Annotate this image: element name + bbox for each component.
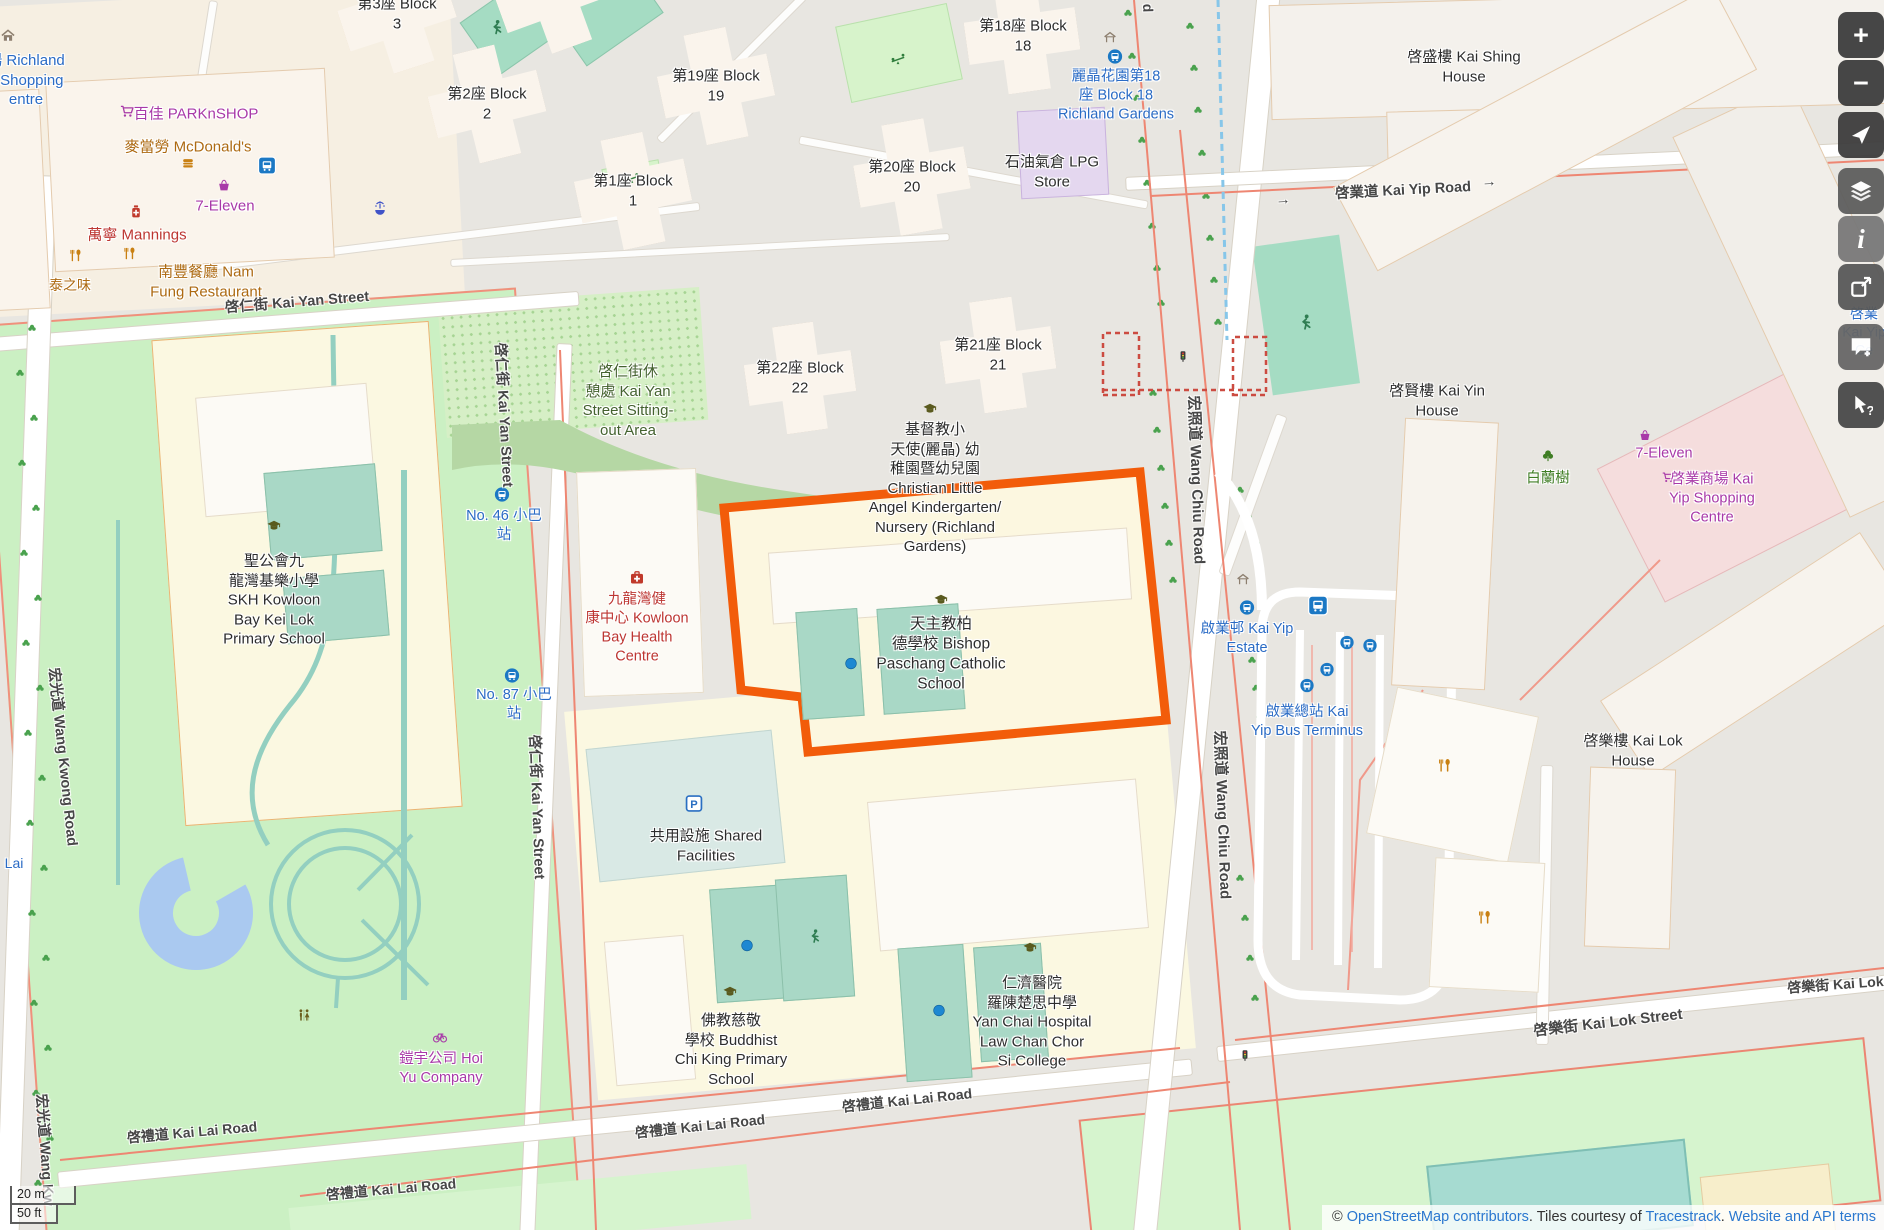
tree-icon xyxy=(29,996,40,1014)
attribution-mid2: . xyxy=(1721,1209,1729,1225)
dot-icon xyxy=(741,939,754,957)
attribution-osm-link[interactable]: OpenStreetMap contributors xyxy=(1347,1209,1529,1225)
attribution-bar: © OpenStreetMap contributors. Tiles cour… xyxy=(1322,1205,1884,1230)
school-icon xyxy=(933,593,949,614)
tl-icon xyxy=(1177,350,1190,368)
scale-bar-metric: 20 m xyxy=(10,1186,76,1205)
map-label-lai-partial: Lai xyxy=(5,854,24,872)
tree-icon xyxy=(1168,573,1179,591)
busstation-icon xyxy=(258,157,276,180)
home-icon xyxy=(1,28,16,48)
tree-icon xyxy=(1160,499,1171,517)
road-estate-5 xyxy=(450,233,950,267)
map-label-block-3: 第3座 Block 3 xyxy=(357,0,436,34)
scale-bar-imperial: 50 ft xyxy=(10,1205,58,1224)
map-label-wang-chiu-road-v2: 宏照道 Wang Chiu Road xyxy=(1209,730,1234,899)
tree-icon xyxy=(1152,423,1163,441)
map-label-block-22: 第22座 Block 22 xyxy=(756,359,844,398)
building-skh-teal-1 xyxy=(263,463,382,560)
map-label-minibus-87: No. 87 小巴 站 xyxy=(476,686,552,724)
busstop-icon xyxy=(1363,639,1377,658)
map-label-wang-chiu-road-tail: d xyxy=(1139,3,1157,12)
school-icon xyxy=(722,985,738,1006)
tl-icon xyxy=(1239,1049,1252,1067)
tree-icon xyxy=(1251,681,1262,699)
tree-icon xyxy=(19,546,30,564)
map-canvas[interactable]: P ? xyxy=(0,0,1884,1230)
tree-icon xyxy=(23,726,34,744)
map-label-block-19: 第19座 Block 19 xyxy=(672,67,760,106)
map-label-parknshop: 百佳 PARKnSHOP xyxy=(134,104,259,124)
zoom-out-button[interactable]: − xyxy=(1838,60,1884,106)
map-label-kai-yip-shopping-centre: 啓業商場 Kai Yip Shopping Centre xyxy=(1669,471,1755,528)
cart-icon xyxy=(120,104,135,124)
map-label-kai-lok-street-2: 啓樂街 Kai Lok S xyxy=(1787,971,1884,997)
map-label-sitting-out-area: 啓仁街休 憩處 Kai Yan Street Sitting- out Area xyxy=(583,362,674,440)
tree-icon xyxy=(1127,49,1138,67)
map-label-block-2: 第2座 Block 2 xyxy=(447,85,526,124)
tree-icon xyxy=(1201,189,1212,207)
tree-icon xyxy=(17,456,28,474)
tree-icon xyxy=(15,366,26,384)
fountain-icon xyxy=(372,200,388,221)
shelter-icon xyxy=(1103,31,1117,50)
hosp-icon xyxy=(629,570,645,591)
tree-icon xyxy=(21,636,32,654)
map-label-skh-kei-lok-school: 聖公會九 龍灣基樂小學 SKH Kowloon Bay Kei Lok Prim… xyxy=(223,551,325,649)
tree-icon xyxy=(1123,6,1134,24)
player-icon xyxy=(489,19,506,41)
map-label-mannings: 萬寧 Mannings xyxy=(87,225,186,245)
tree-icon xyxy=(1147,219,1158,237)
add-note-button[interactable] xyxy=(1838,324,1884,370)
tree-icon xyxy=(29,411,40,429)
fork-icon xyxy=(1478,910,1493,930)
map-label-kai-yin-house: 啓賢樓 Kai Yin House xyxy=(1389,382,1485,421)
tree-icon xyxy=(1156,461,1167,479)
map-label-kai-lok-house: 啓樂樓 Kai Lok House xyxy=(1583,732,1682,771)
share-button[interactable] xyxy=(1838,264,1884,310)
map-label-bishop-paschang-school: 天主教柏 德學校 Bishop Paschang Catholic School xyxy=(876,615,1005,696)
tree-icon xyxy=(1148,386,1159,404)
map-label-kai-yip-bus-terminus: 啟業總站 Kai Yip Bus Terminus xyxy=(1251,703,1363,741)
map-label-thai-flavour: 泰之味 xyxy=(49,276,91,294)
tree-icon xyxy=(37,771,48,789)
tree-icon xyxy=(1209,273,1220,291)
tree-icon xyxy=(1245,951,1256,969)
burger-icon xyxy=(181,157,195,176)
map-label-richland-gardens-stop: 麗晶花園第18 座 Block 18 Richland Gardens xyxy=(1058,68,1174,125)
busstop-icon xyxy=(1320,663,1334,682)
map-label-arrow-kai-yip-e: → xyxy=(1481,172,1497,192)
basket-icon xyxy=(217,179,231,198)
tree-icon xyxy=(1152,261,1163,279)
tree-icon xyxy=(27,321,38,339)
tree-icon xyxy=(39,861,50,879)
map-label-block-18: 第18座 Block 18 xyxy=(979,17,1067,56)
map-label-mcdonalds: 麥當勞 McDonald's xyxy=(124,137,251,157)
tree-icon xyxy=(1240,911,1251,929)
layers-button[interactable] xyxy=(1838,168,1884,214)
building-kai-yin-house-vert xyxy=(1391,418,1499,691)
map-label-seven-eleven-west: 7-Eleven xyxy=(195,196,254,216)
tree-icon xyxy=(1235,483,1246,501)
tree-icon xyxy=(1156,296,1167,314)
map-label-minibus-46: No. 46 小巴 站 xyxy=(466,507,542,545)
query-features-button[interactable] xyxy=(1838,382,1884,428)
busstop-icon xyxy=(1240,600,1255,620)
busstop-icon xyxy=(505,668,520,688)
map-label-block-21: 第21座 Block 21 xyxy=(954,336,1042,375)
map-label-buddhist-chi-king-school: 佛教慈敬 學校 Buddhist Chi King Primary School xyxy=(675,1011,788,1089)
map-label-wang-chiu-road-v1: 宏照道 Wang Chiu Road xyxy=(1183,395,1208,564)
map-label-richland-shopping-centre: 場 Richland s Shopping entre xyxy=(0,51,65,110)
pharm-icon xyxy=(129,204,144,224)
tree-icon xyxy=(1251,535,1262,553)
attribution-tiles-link[interactable]: Tracestrack xyxy=(1646,1209,1721,1225)
busstation-icon xyxy=(1308,596,1328,621)
busstop-icon xyxy=(1108,49,1123,69)
attribution-mid1: . Tiles courtesy of xyxy=(1529,1209,1646,1225)
map-label-hoi-yu-company: 鎧宇公司 Hoi Yu Company xyxy=(399,1050,483,1088)
map-label-yan-chai-college: 仁濟醫院 羅陳楚思中學 Yan Chai Hospital Law Chan C… xyxy=(973,973,1092,1071)
map-label-kowloon-bay-health-centre: 九龍灣健 康中心 Kowloon Bay Health Centre xyxy=(585,590,688,665)
tree-icon xyxy=(1250,991,1261,1009)
tree-icon xyxy=(1213,315,1224,333)
busstop-icon xyxy=(1300,679,1314,698)
tree-icon xyxy=(1243,509,1254,527)
busstop-icon xyxy=(495,487,510,507)
attribution-copyright: © xyxy=(1332,1209,1347,1225)
tree-icon xyxy=(1197,146,1208,164)
tree-icon xyxy=(1137,133,1148,151)
wc-icon xyxy=(297,1008,312,1028)
tree-icon xyxy=(1142,176,1153,194)
building-restaurant-block-1 xyxy=(1366,687,1539,864)
tree-icon xyxy=(1193,103,1204,121)
fork-icon xyxy=(123,247,137,266)
fork-icon xyxy=(1438,758,1453,778)
dot-icon xyxy=(933,1004,946,1022)
school-icon xyxy=(1022,941,1038,962)
busstop-icon xyxy=(1340,636,1354,655)
map-label-lpg-store: 石油氣倉 LPG Store xyxy=(1005,153,1099,192)
info-button[interactable]: i xyxy=(1838,216,1884,262)
player-icon xyxy=(807,929,823,950)
tree-icon xyxy=(25,816,36,834)
map-label-arrow-kai-yip-w: → xyxy=(1275,190,1291,210)
map-label-nam-fung-restaurant: 南豐餐廳 Nam Fung Restaurant xyxy=(150,263,262,302)
zoom-in-button[interactable]: + xyxy=(1838,12,1884,58)
map-label-block-1: 第1座 Block 1 xyxy=(593,172,672,211)
tree-icon xyxy=(1189,61,1200,79)
tree-icon xyxy=(1164,536,1175,554)
shelter-icon xyxy=(1236,573,1250,592)
tree-icon xyxy=(33,591,44,609)
attribution-terms-link[interactable]: Website and API terms xyxy=(1729,1209,1876,1225)
map-label-pak-lan-tree: 白蘭樹 xyxy=(1526,470,1570,489)
tree-icon xyxy=(27,906,38,924)
school-icon xyxy=(266,519,282,540)
locate-button[interactable] xyxy=(1838,112,1884,158)
map-label-shared-facilities: 共用設施 Shared Facilities xyxy=(650,827,763,866)
map-label-kai-yip-estate: 啟業邨 Kai Yip Estate xyxy=(1201,620,1294,658)
tree-icon xyxy=(41,951,52,969)
map-label-block-20: 第20座 Block 20 xyxy=(868,158,956,197)
tree-icon xyxy=(43,1041,54,1059)
tree-icon xyxy=(1235,871,1246,889)
tree-icon xyxy=(1185,19,1196,37)
map-label-seven-eleven-east: 7-Eleven xyxy=(1635,445,1692,464)
map-label-kai-shing-house: 啓盛樓 Kai Shing House xyxy=(1407,48,1520,87)
bicycle-icon xyxy=(432,1029,448,1050)
parking-icon xyxy=(686,795,703,817)
player-icon xyxy=(1297,314,1315,337)
seesaw-icon xyxy=(890,52,906,73)
map-label-christian-little-angel: 基督教小 天使(麗晶) 幼 稚園暨幼兒園 Christian Little An… xyxy=(869,420,1002,557)
tree-icon xyxy=(1205,231,1216,249)
dot-icon xyxy=(845,657,858,675)
tree-icon xyxy=(31,501,42,519)
building-kai-lok-house-vert xyxy=(1584,767,1676,950)
bigtree-icon xyxy=(1541,448,1556,468)
building-college-white xyxy=(867,779,1149,952)
fork-icon xyxy=(69,249,83,268)
